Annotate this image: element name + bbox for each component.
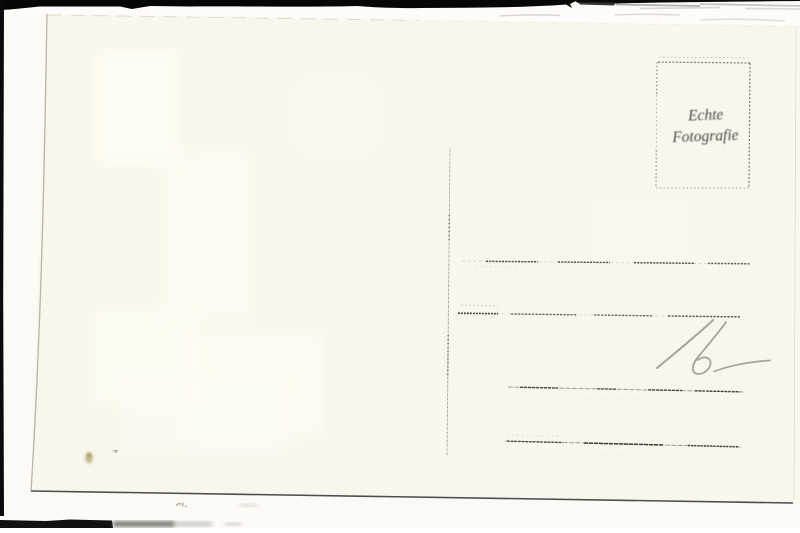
- svg-text:Echte: Echte: [687, 106, 724, 124]
- svg-text:Fotografie: Fotografie: [671, 127, 739, 146]
